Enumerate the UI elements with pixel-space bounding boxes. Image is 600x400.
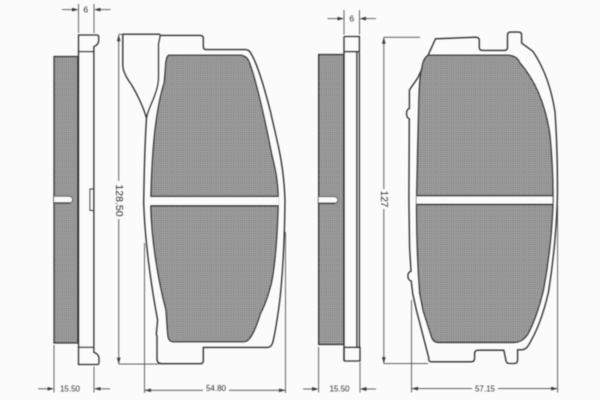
svg-text:6: 6	[83, 4, 88, 14]
svg-text:15.50: 15.50	[329, 385, 350, 394]
svg-text:127: 127	[378, 191, 389, 208]
svg-text:54.80: 54.80	[206, 384, 227, 393]
svg-text:128.50: 128.50	[113, 184, 125, 216]
svg-text:15.50: 15.50	[60, 384, 81, 393]
svg-text:6: 6	[349, 13, 354, 23]
svg-text:57.15: 57.15	[475, 384, 496, 393]
